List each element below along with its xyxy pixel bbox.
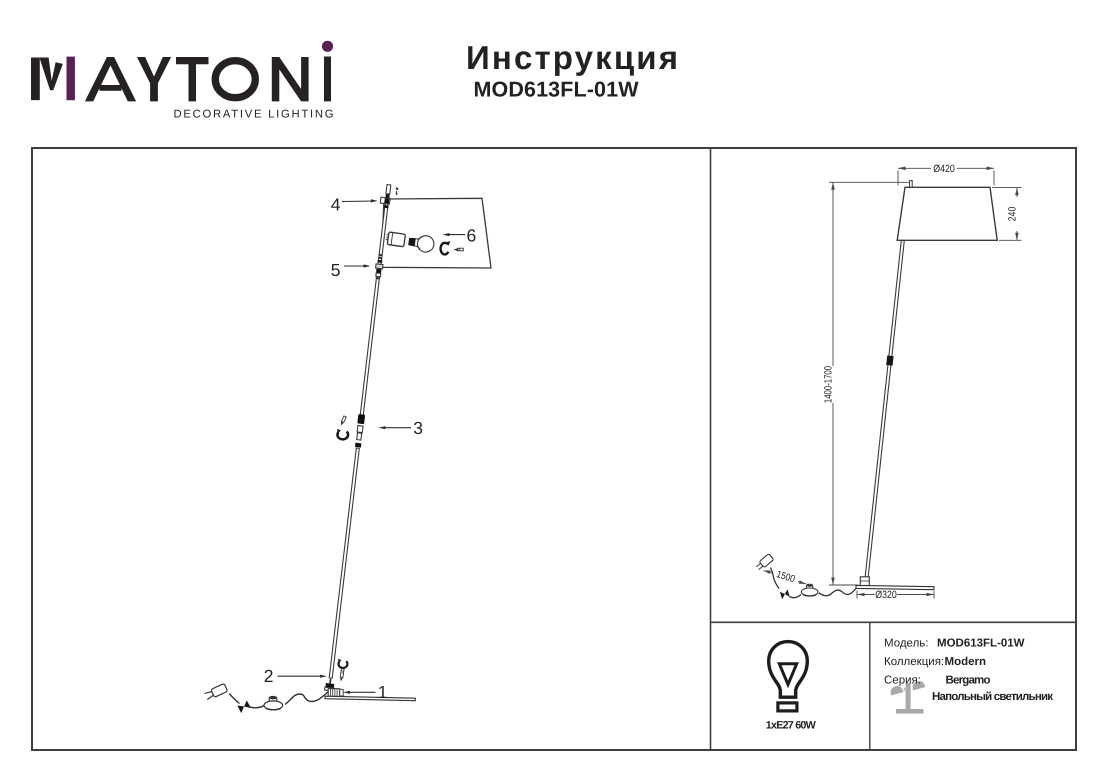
svg-text:3: 3 [413,418,423,438]
svg-text:Модель:: Модель: [884,638,928,650]
svg-text:1: 1 [378,682,388,702]
svg-text:1400-1700: 1400-1700 [823,366,835,403]
svg-text:4: 4 [331,194,341,214]
svg-text:Modern: Modern [945,656,987,668]
svg-text:Серия:: Серия: [884,675,921,687]
svg-text:1500: 1500 [775,569,796,585]
svg-text:5: 5 [331,260,341,280]
svg-text:Bergamo: Bergamo [946,675,991,687]
svg-text:DECORATIVE LIGHTING: DECORATIVE LIGHTING [174,109,334,121]
svg-text:Коллекция:: Коллекция: [884,656,944,668]
svg-text:240: 240 [1007,207,1019,222]
svg-text:Ø320: Ø320 [875,589,897,601]
svg-text:Инструкция: Инструкция [466,39,678,76]
svg-text:MOD613FL-01W: MOD613FL-01W [474,78,640,102]
svg-text:2: 2 [264,666,274,686]
svg-text:Напольный светильник: Напольный светильник [932,691,1053,703]
svg-text:Ø420: Ø420 [933,163,955,175]
svg-text:MOD613FL-01W: MOD613FL-01W [937,638,1025,650]
svg-text:1xE27 60W: 1xE27 60W [766,720,817,732]
svg-text:6: 6 [467,225,477,245]
